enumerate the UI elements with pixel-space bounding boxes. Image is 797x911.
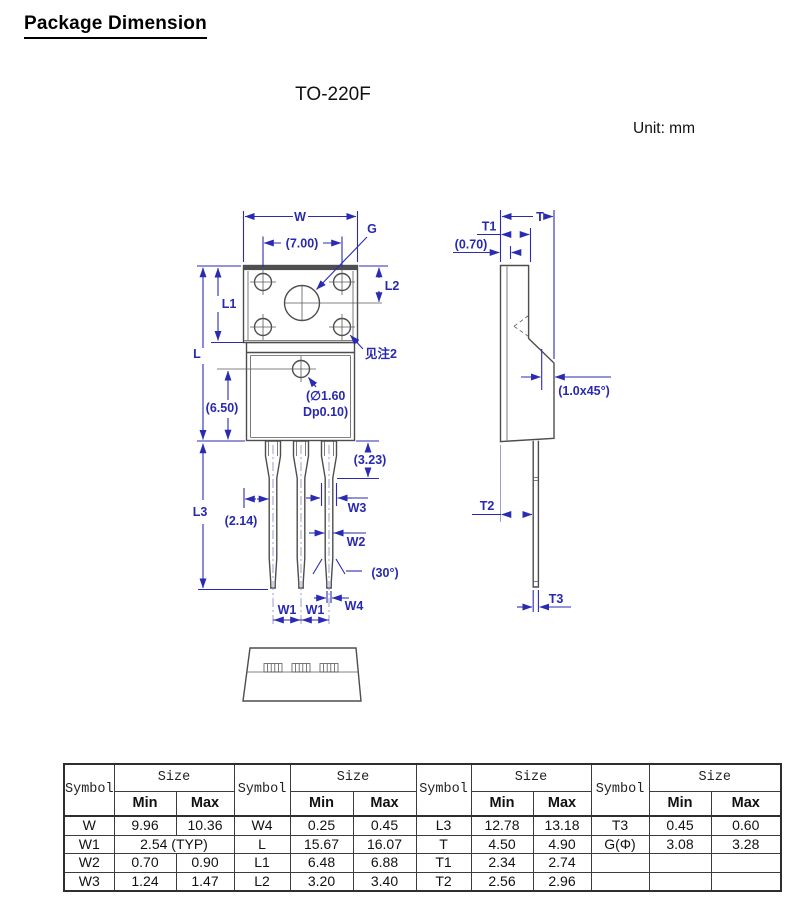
table-header-min: Min — [290, 792, 353, 817]
table-cell-min: 1.24 — [114, 872, 176, 891]
table-row: W 9.96 10.36 W4 0.25 0.45 L3 12.78 13.18… — [64, 816, 781, 835]
table-header-max: Max — [533, 792, 591, 817]
table-cell-max: 3.40 — [353, 872, 416, 891]
dim-label-w1-right: W1 — [306, 603, 325, 617]
table-cell-symbol: T2 — [416, 872, 471, 891]
table-header-min: Min — [649, 792, 711, 817]
datasheet-page: Package Dimension TO-220F Unit: mm — [0, 0, 797, 911]
dim-label-l: L — [193, 347, 201, 361]
package-drawing: W (7.00) G L2 L1 L (6.50) 见注2 (∅1.60 Dp0… — [0, 0, 797, 760]
table-cell-symbol — [591, 872, 649, 891]
table-header-min: Min — [114, 792, 176, 817]
table-cell-max: 6.88 — [353, 854, 416, 873]
table-cell-max: 1.47 — [176, 872, 234, 891]
dim-label-30deg: (30°) — [371, 566, 398, 580]
table-cell-max — [711, 854, 781, 873]
mounting-hole-g — [284, 285, 382, 321]
table-cell-max: 2.74 — [533, 854, 591, 873]
mounting-tab-edge — [244, 266, 358, 271]
dim-label-7-00: (7.00) — [286, 237, 319, 251]
see-note-2-label: 见注2 — [365, 346, 397, 361]
table-cell-max: 0.90 — [176, 854, 234, 873]
table-cell-symbol: L3 — [416, 816, 471, 835]
dim-label-t: T — [536, 210, 544, 224]
table-header-symbol: Symbol — [234, 764, 290, 816]
table-cell-min — [649, 872, 711, 891]
front-view-dimensions: W (7.00) G L2 L1 L (6.50) 见注2 (∅1.60 Dp0… — [193, 210, 400, 620]
table-cell-max: 3.28 — [711, 835, 781, 854]
table-cell-symbol: T — [416, 835, 471, 854]
package-name: TO-220F — [283, 84, 383, 106]
dim-label-w: W — [294, 210, 306, 224]
dim-label-l1: L1 — [222, 297, 237, 311]
dim-label-g: G — [367, 222, 377, 236]
table-cell-max: 2.96 — [533, 872, 591, 891]
table-cell-max: 4.90 — [533, 835, 591, 854]
dim-label-l2: L2 — [385, 279, 400, 293]
chamfer-hidden-line — [514, 316, 529, 337]
dim-label-w1-left: W1 — [278, 603, 297, 617]
table-cell-symbol: W2 — [64, 854, 114, 873]
table-cell-max: 0.45 — [353, 816, 416, 835]
dim-label-3-23: (3.23) — [354, 453, 387, 467]
dim-label-chamfer: (1.0x45°) — [558, 384, 610, 398]
table-cell-typ: 2.54 (TYP) — [114, 835, 234, 854]
dim-label-t3: T3 — [549, 592, 564, 606]
dim-label-2-14: (2.14) — [225, 514, 258, 528]
unit-label: Unit: mm — [633, 120, 695, 138]
side-view-dimensions: T T1 (0.70) (1.0x45°) T2 T3 — [453, 210, 611, 612]
hole-dia-label-line1: (∅1.60 — [306, 389, 345, 403]
table-header-min: Min — [471, 792, 533, 817]
table-cell-max: 0.60 — [711, 816, 781, 835]
table-header-size: Size — [649, 764, 781, 792]
bottom-view — [243, 648, 361, 701]
table-row: W1 2.54 (TYP) L 15.67 16.07 T 4.50 4.90 … — [64, 835, 781, 854]
dim-label-6-50: (6.50) — [206, 401, 239, 415]
corner-hole-top-left — [250, 269, 276, 295]
table-cell-symbol: T3 — [591, 816, 649, 835]
dim-label-l3: L3 — [193, 505, 208, 519]
table-cell-symbol: L2 — [234, 872, 290, 891]
table-cell-symbol — [591, 854, 649, 873]
table-cell-min: 6.48 — [290, 854, 353, 873]
table-row: W3 1.24 1.47 L2 3.20 3.40 T2 2.56 2.96 — [64, 872, 781, 891]
dim-label-w4: W4 — [345, 599, 364, 613]
table-cell-min: 4.50 — [471, 835, 533, 854]
lower-hole — [217, 356, 316, 382]
corner-hole-bottom-left — [250, 314, 276, 340]
table-header-size: Size — [471, 764, 591, 792]
table-cell-symbol: L1 — [234, 854, 290, 873]
table-header-max: Max — [711, 792, 781, 817]
table-cell-symbol: W4 — [234, 816, 290, 835]
table-cell-symbol: G(Φ) — [591, 835, 649, 854]
table-cell-max: 13.18 — [533, 816, 591, 835]
side-lead — [533, 441, 538, 587]
dim-label-w2: W2 — [347, 535, 366, 549]
table-header-max: Max — [353, 792, 416, 817]
lead-serrations — [264, 664, 338, 673]
table-cell-min: 9.96 — [114, 816, 176, 835]
lead-centerlines — [273, 445, 329, 627]
table-cell-symbol: W3 — [64, 872, 114, 891]
table-header-symbol: Symbol — [591, 764, 649, 816]
table-cell-max: 16.07 — [353, 835, 416, 854]
table-cell-min: 0.25 — [290, 816, 353, 835]
table-header-size: Size — [290, 764, 416, 792]
dim-label-0-70: (0.70) — [455, 238, 488, 252]
table-cell-min: 0.45 — [649, 816, 711, 835]
hole-dia-label-line2: Dp0.10) — [303, 405, 348, 419]
table-header-symbol: Symbol — [64, 764, 114, 816]
dim-label-w3: W3 — [348, 501, 367, 515]
table-cell-min: 2.56 — [471, 872, 533, 891]
dimension-table: Symbol Size Symbol Size Symbol Size Symb… — [63, 763, 782, 892]
table-cell-min: 15.67 — [290, 835, 353, 854]
table-cell-min: 2.34 — [471, 854, 533, 873]
table-header-symbol: Symbol — [416, 764, 471, 816]
page-title: Package Dimension — [24, 13, 207, 39]
front-view-leads — [266, 441, 337, 627]
side-view-body — [501, 266, 555, 588]
table-cell-symbol: W — [64, 816, 114, 835]
table-cell-symbol: T1 — [416, 854, 471, 873]
dim-label-t1: T1 — [482, 220, 497, 234]
front-view-body — [217, 266, 382, 441]
table-cell-min: 12.78 — [471, 816, 533, 835]
table-cell-max: 10.36 — [176, 816, 234, 835]
table-cell-min: 3.08 — [649, 835, 711, 854]
table-row: W2 0.70 0.90 L1 6.48 6.88 T1 2.34 2.74 — [64, 854, 781, 873]
table-cell-max — [711, 872, 781, 891]
table-cell-symbol: L — [234, 835, 290, 854]
table-header-size: Size — [114, 764, 234, 792]
table-cell-min: 0.70 — [114, 854, 176, 873]
table-cell-min — [649, 854, 711, 873]
table-header-max: Max — [176, 792, 234, 817]
table-cell-min: 3.20 — [290, 872, 353, 891]
table-cell-symbol: W1 — [64, 835, 114, 854]
dim-label-t2: T2 — [480, 499, 495, 513]
